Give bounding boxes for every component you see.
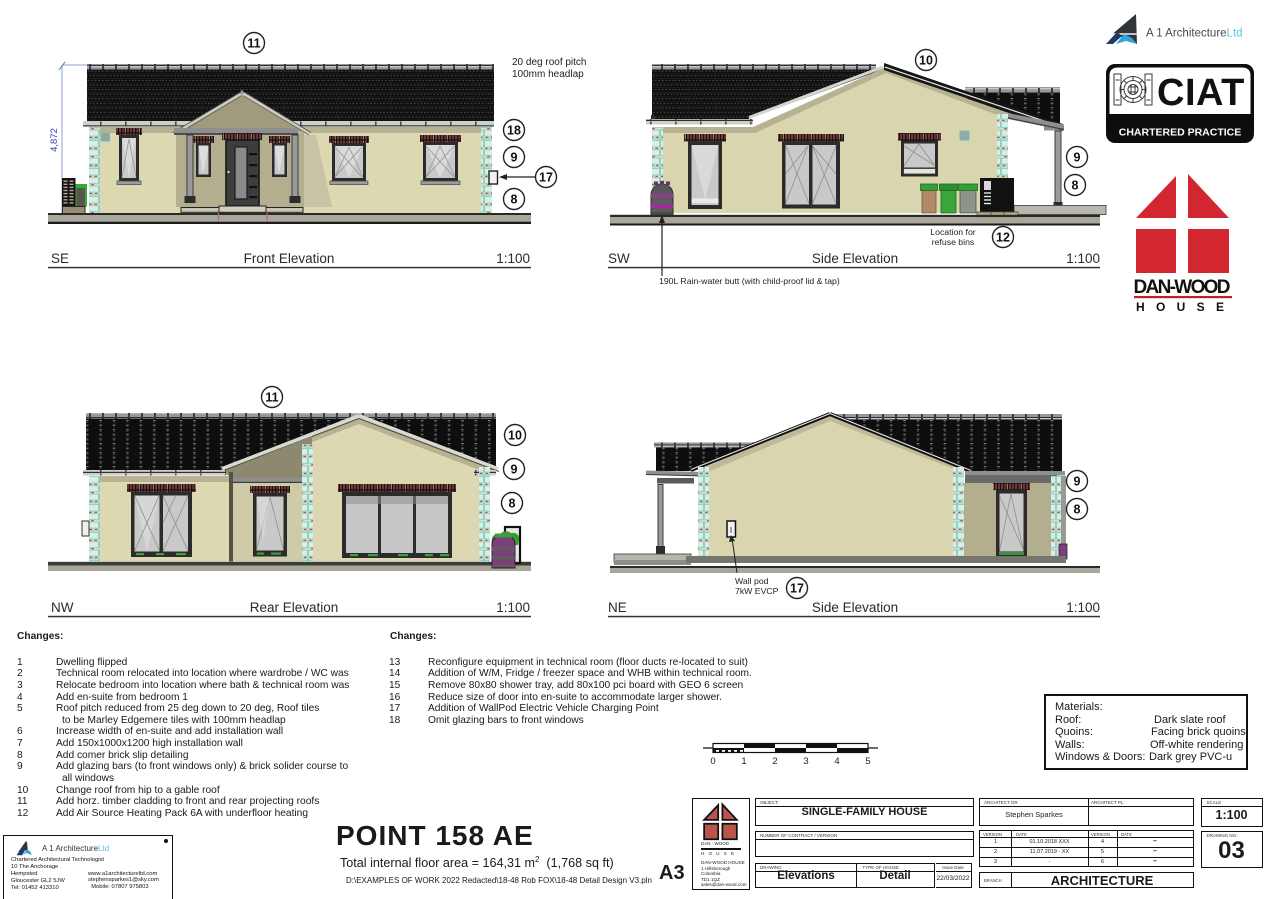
- svg-text:4,872: 4,872: [49, 128, 60, 152]
- svg-text:Rear Elevation: Rear Elevation: [250, 600, 339, 615]
- svg-text:SW: SW: [608, 251, 630, 266]
- svg-text:NE: NE: [608, 600, 627, 615]
- svg-text:9: 9: [511, 463, 518, 477]
- svg-text:Side Elevation: Side Elevation: [812, 251, 898, 266]
- svg-text:1:100: 1:100: [496, 600, 530, 615]
- svg-text:Wall pod: Wall pod: [735, 576, 769, 586]
- svg-text:3: 3: [803, 756, 808, 767]
- svg-text:CIAT: CIAT: [1157, 72, 1245, 114]
- svg-text:1: 1: [741, 756, 746, 767]
- svg-text:20 deg roof pitch: 20 deg roof pitch: [512, 57, 587, 68]
- svg-text:17: 17: [790, 582, 804, 596]
- svg-text:NW: NW: [51, 600, 74, 615]
- svg-text:8: 8: [511, 193, 518, 207]
- svg-text:12: 12: [996, 231, 1010, 245]
- svg-text:190L Rain-water butt (with chi: 190L Rain-water butt (with child-proof l…: [659, 276, 840, 286]
- svg-text:refuse bins: refuse bins: [932, 237, 975, 247]
- svg-text:8: 8: [1072, 179, 1079, 193]
- svg-text:10: 10: [508, 429, 522, 443]
- svg-text:17: 17: [539, 171, 553, 185]
- svg-text:8: 8: [509, 497, 516, 511]
- svg-text:100mm headlap: 100mm headlap: [512, 69, 584, 80]
- svg-text:9: 9: [511, 151, 518, 165]
- svg-text:4: 4: [834, 756, 839, 767]
- svg-text:5: 5: [865, 756, 870, 767]
- svg-text:Front Elevation: Front Elevation: [244, 251, 335, 266]
- svg-text:8: 8: [1074, 503, 1081, 517]
- svg-text:10: 10: [919, 54, 933, 68]
- svg-text:DAN-WOOD: DAN-WOOD: [1134, 277, 1231, 298]
- svg-text:1:100: 1:100: [496, 251, 530, 266]
- svg-text:11: 11: [247, 37, 260, 51]
- svg-text:11: 11: [265, 391, 278, 405]
- svg-text:Location for: Location for: [930, 227, 976, 237]
- svg-text:18: 18: [507, 124, 521, 138]
- svg-text:7kW EVCP: 7kW EVCP: [735, 586, 779, 596]
- svg-text:A 1 ArchitectureLtd: A 1 ArchitectureLtd: [1146, 28, 1243, 40]
- svg-text:9: 9: [1074, 475, 1081, 489]
- svg-text:2: 2: [772, 756, 777, 767]
- svg-text:1:100: 1:100: [1066, 600, 1100, 615]
- svg-text:Side Elevation: Side Elevation: [812, 600, 898, 615]
- svg-text:1:100: 1:100: [1066, 251, 1100, 266]
- svg-text:HOUSE: HOUSE: [1136, 300, 1230, 314]
- svg-text:SE: SE: [51, 251, 69, 266]
- svg-text:9: 9: [1074, 151, 1081, 165]
- svg-text:0: 0: [710, 756, 715, 767]
- svg-text:CHARTERED PRACTICE: CHARTERED PRACTICE: [1119, 127, 1242, 139]
